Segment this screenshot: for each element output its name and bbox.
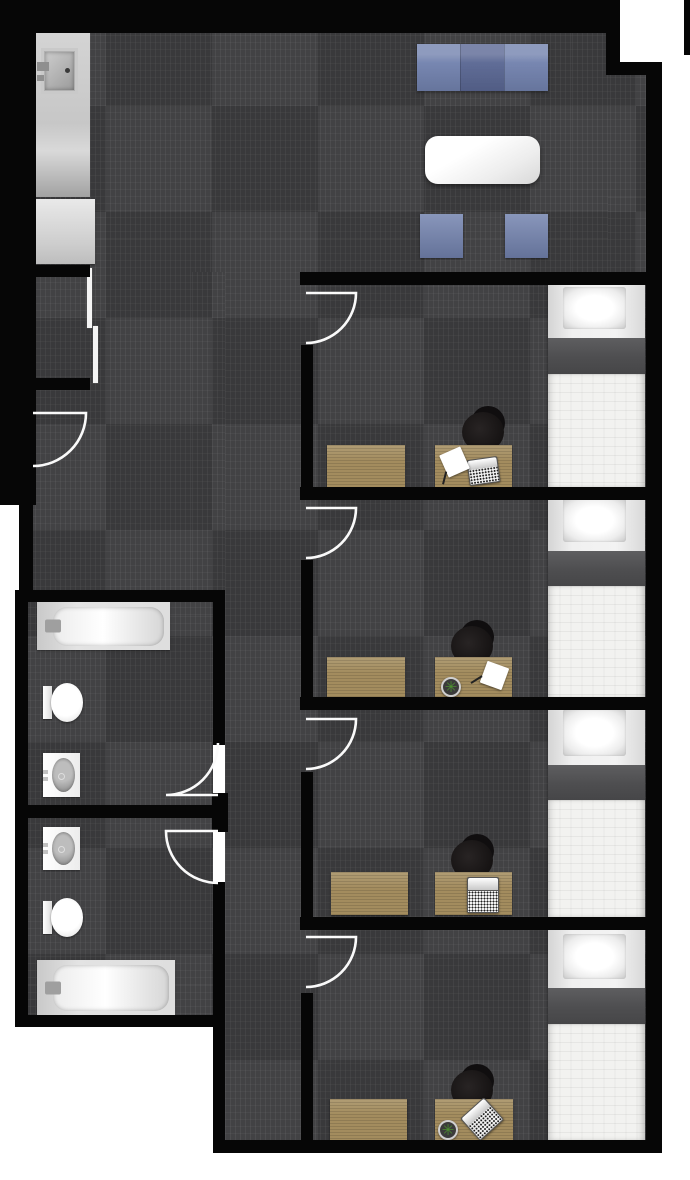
living-area-lounge-chair-right — [505, 214, 548, 258]
sofa-cushion-left — [417, 44, 460, 91]
vanity-faucet-dot — [58, 773, 65, 780]
bed-mattress — [548, 586, 645, 698]
laptop-screen — [468, 878, 498, 890]
wall-bed-divider-2 — [300, 487, 652, 500]
wall-top — [0, 0, 620, 33]
sofa-cushion-right — [504, 44, 548, 91]
kitchenette-counter — [36, 199, 95, 264]
bedroom-3-bed — [548, 703, 645, 917]
bedroom-2-dresser — [327, 657, 405, 698]
faucet-icon — [37, 62, 49, 71]
vanity-tap — [43, 843, 48, 847]
toilet-bowl — [51, 898, 83, 937]
bed-mattress — [548, 800, 645, 917]
closet-closet-slider-door-lower — [93, 326, 98, 383]
carpet-floor — [33, 272, 225, 590]
wall-closet-top — [35, 265, 90, 277]
bathroom-2-toilet — [43, 898, 83, 937]
laptop-keyboard — [468, 891, 498, 912]
vanity-tap — [43, 777, 48, 781]
bed-headboard — [548, 281, 645, 338]
bathroom-2-bathtub — [37, 960, 175, 1015]
bedroom-3-dresser — [331, 872, 408, 915]
floor-plan-canvas: ✳✳ — [0, 0, 690, 1180]
bathroom-1-sink-vanity — [43, 753, 80, 797]
bedroom-4-bed — [548, 928, 645, 1140]
bed-pillow — [563, 709, 626, 756]
bathroom-2-sink-vanity — [43, 827, 80, 870]
bed-pillow — [563, 934, 626, 979]
bed-blanket-band — [548, 765, 645, 800]
wall-bath-bottom — [15, 1015, 225, 1027]
bedroom-2-potted-plant: ✳ — [441, 677, 461, 697]
wall-right — [646, 62, 662, 1153]
bathroom-1-toilet — [43, 683, 83, 722]
living-area-lounge-chair-left — [420, 214, 463, 258]
sofa-cushion-middle — [460, 44, 504, 91]
wall-bed-divider-4 — [300, 917, 652, 930]
tub-faucet — [45, 981, 61, 994]
sink-drain — [65, 68, 70, 73]
wall-bed-divider-3 — [300, 697, 652, 710]
bedroom-1-dresser — [327, 445, 405, 487]
kitchen-sink — [41, 48, 78, 94]
bed-headboard — [548, 928, 645, 988]
wall-bath-right-hinge — [212, 793, 228, 832]
bed-mattress — [548, 374, 645, 487]
kitchenette-sink-counter — [36, 33, 90, 197]
wall-closet-bottom — [35, 378, 90, 390]
tub-basin — [53, 965, 169, 1011]
wall-bedroom4-left — [301, 993, 313, 1153]
living-area-sofa — [417, 44, 548, 91]
wall-bath-right-lower — [213, 882, 225, 1153]
wall-right-top-bar — [684, 0, 690, 55]
faucet-handle — [37, 75, 44, 81]
bedroom-4-dresser — [330, 1099, 407, 1140]
toilet-bowl — [51, 683, 83, 722]
wall-bed-divider-1 — [300, 272, 652, 285]
wall-bottom — [213, 1140, 662, 1153]
bed-headboard — [548, 492, 645, 551]
bedroom-1-bed — [548, 281, 645, 487]
bedroom-4-potted-plant: ✳ — [438, 1120, 458, 1140]
bedroom-3-laptop — [467, 877, 499, 913]
wall-bath-mid — [15, 805, 213, 818]
bedroom-2-bed — [548, 492, 645, 698]
bed-blanket-band — [548, 988, 645, 1024]
bedroom-1-laptop — [466, 456, 500, 486]
wall-bath-right-upper — [213, 602, 225, 745]
vanity-tap — [43, 850, 48, 854]
tub-faucet — [45, 620, 61, 633]
bed-pillow — [563, 498, 626, 542]
closet-closet-slider-door-upper — [87, 268, 92, 328]
bed-pillow — [563, 287, 626, 329]
wall-left-band — [0, 0, 36, 505]
living-area-coffee-table — [425, 136, 540, 184]
wall-bedroom3-left — [301, 772, 313, 930]
bed-mattress — [548, 1024, 645, 1140]
bed-headboard — [548, 703, 645, 765]
bed-blanket-band — [548, 338, 645, 374]
vanity-tap — [43, 770, 48, 774]
wall-bedroom2-left — [301, 560, 313, 710]
bathroom-1-bathtub — [37, 602, 170, 650]
laptop-keyboard — [469, 466, 500, 485]
tub-basin — [53, 607, 164, 646]
wall-bedroom1-left — [301, 345, 313, 500]
wall-bath-top — [15, 590, 225, 602]
carpet-floor — [608, 75, 648, 272]
wall-left-lower — [19, 505, 33, 602]
bed-blanket-band — [548, 551, 645, 586]
